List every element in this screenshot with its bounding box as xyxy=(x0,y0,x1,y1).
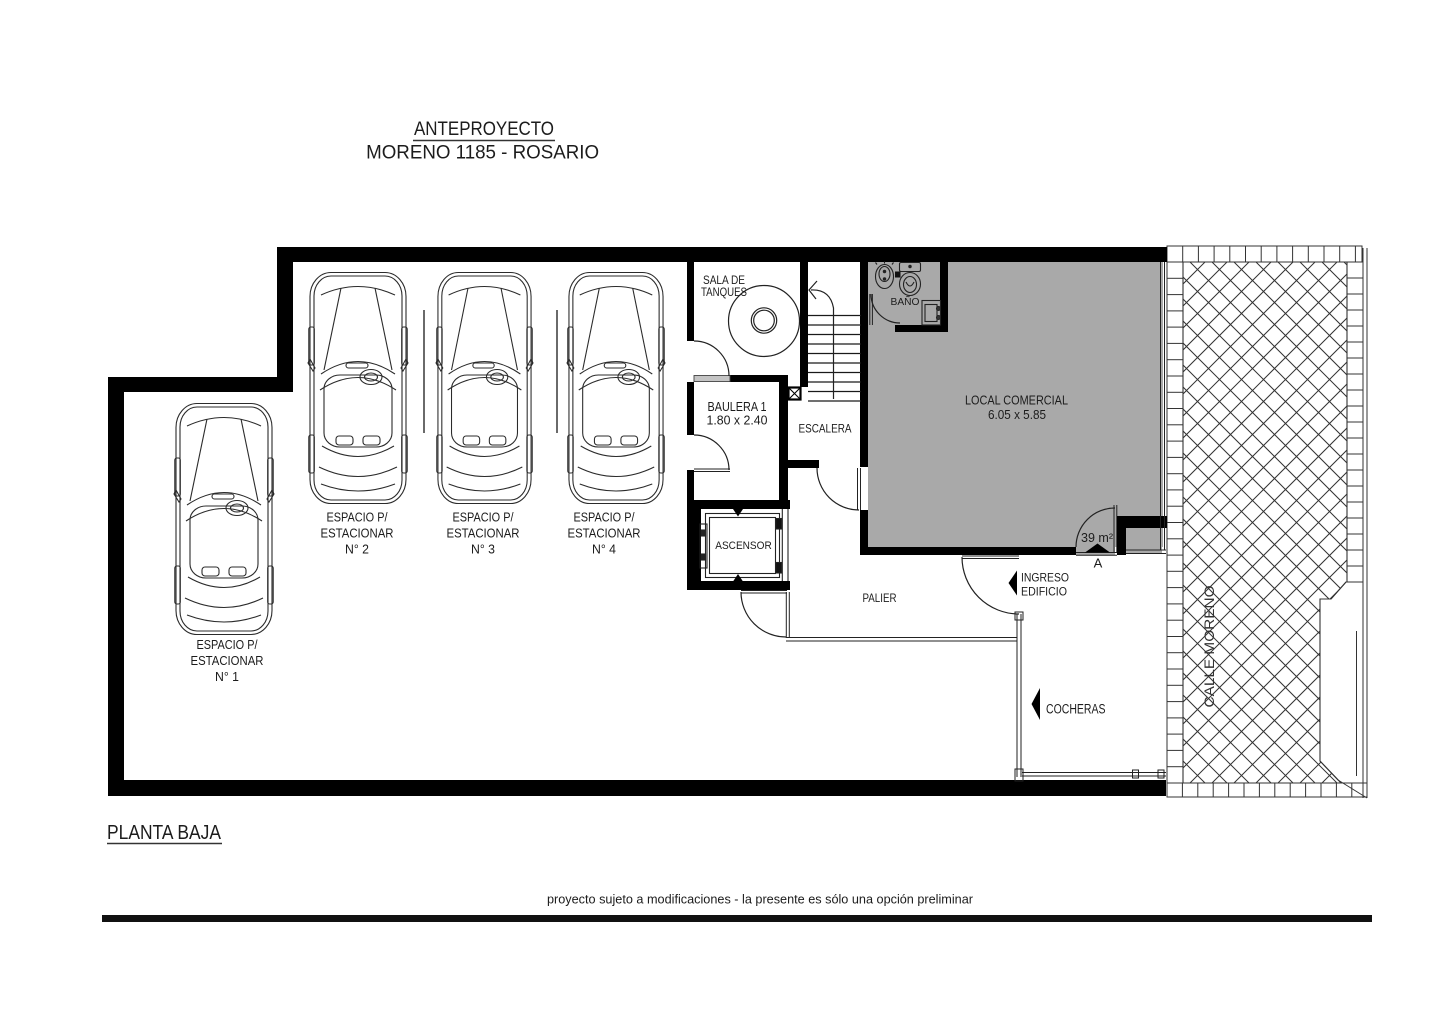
svg-text:CALLE MORENO: CALLE MORENO xyxy=(1202,586,1217,708)
svg-text:N° 2: N° 2 xyxy=(345,543,369,557)
svg-text:ESTACIONAR: ESTACIONAR xyxy=(568,527,641,541)
svg-text:N° 3: N° 3 xyxy=(471,543,495,557)
svg-text:LOCAL COMERCIAL: LOCAL COMERCIAL xyxy=(965,393,1068,408)
svg-text:INGRESO: INGRESO xyxy=(1021,570,1069,584)
svg-text:COCHERAS: COCHERAS xyxy=(1046,701,1106,716)
svg-text:ESPACIO P/: ESPACIO P/ xyxy=(574,511,635,525)
svg-text:ESTACIONAR: ESTACIONAR xyxy=(321,527,394,541)
svg-text:MORENO 1185 - ROSARIO: MORENO 1185 - ROSARIO xyxy=(366,142,599,164)
svg-text:SALA DE: SALA DE xyxy=(703,275,745,287)
svg-text:PALIER: PALIER xyxy=(863,591,897,605)
svg-text:TANQUES: TANQUES xyxy=(701,287,747,299)
svg-text:ESPACIO P/: ESPACIO P/ xyxy=(197,638,258,652)
svg-text:ANTEPROYECTO: ANTEPROYECTO xyxy=(414,118,554,140)
svg-text:6.05 x 5.85: 6.05 x 5.85 xyxy=(988,408,1046,422)
svg-text:ESTACIONAR: ESTACIONAR xyxy=(447,527,520,541)
svg-text:PLANTA BAJA: PLANTA BAJA xyxy=(107,821,221,844)
svg-text:proyecto sujeto a modificacion: proyecto sujeto a modificaciones - la pr… xyxy=(547,893,974,907)
svg-text:EDIFICIO: EDIFICIO xyxy=(1021,585,1067,599)
svg-text:ESTACIONAR: ESTACIONAR xyxy=(191,654,264,668)
svg-text:N° 1: N° 1 xyxy=(215,670,239,684)
svg-text:BAÑO: BAÑO xyxy=(891,295,920,308)
svg-text:ASCENSOR: ASCENSOR xyxy=(715,540,772,552)
svg-text:ESCALERA: ESCALERA xyxy=(799,422,852,436)
svg-text:ESPACIO P/: ESPACIO P/ xyxy=(327,511,388,525)
svg-text:N° 4: N° 4 xyxy=(592,543,616,557)
svg-text:A: A xyxy=(1094,555,1103,570)
svg-text:1.80 x 2.40: 1.80 x 2.40 xyxy=(707,413,768,428)
svg-text:39 m²: 39 m² xyxy=(1081,531,1113,545)
svg-text:ESPACIO P/: ESPACIO P/ xyxy=(453,511,514,525)
